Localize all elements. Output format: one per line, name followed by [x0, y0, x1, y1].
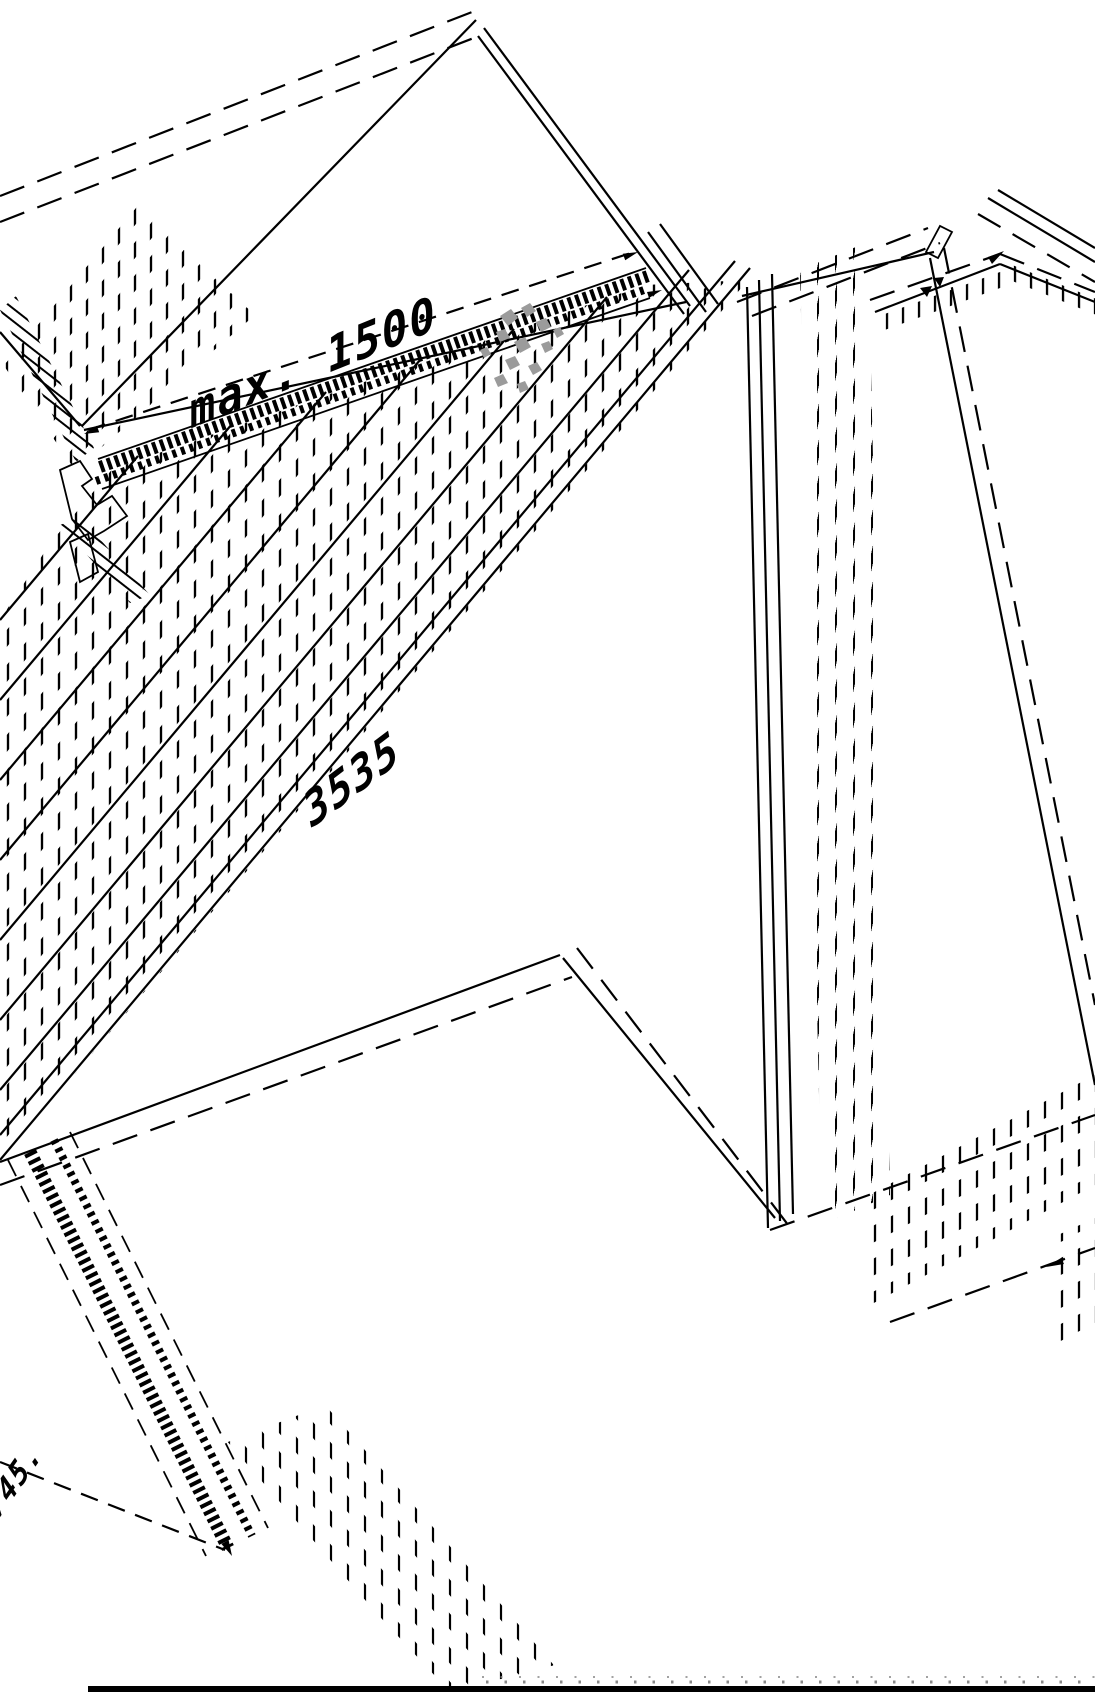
technical-drawing-canvas: 3535 max. 1500: [0, 0, 1095, 1692]
right-beam-right-edge: [930, 258, 1095, 1085]
dimension-arrow-right: [623, 252, 638, 260]
bottom-left-rod: 745.: [0, 1132, 268, 1556]
peak-comb-right: [1000, 258, 1095, 326]
right-beam-top-cap: [926, 226, 952, 258]
right-beam-left-edge: [747, 287, 768, 1228]
slab-end-edge: [563, 958, 775, 1218]
panel-dashed-border-inner: [0, 34, 484, 222]
right-beam-comb-texture: [800, 242, 890, 1225]
footer: [88, 1677, 1095, 1692]
panel-right-edge: [484, 28, 690, 306]
dimension-text-745: 745.: [0, 1435, 50, 1526]
isometric-diagram: 3535 max. 1500: [0, 0, 1095, 1692]
bottom-right-assembly: [870, 1060, 1095, 1352]
right-beam: [737, 190, 1095, 1230]
bottom-center-comb-texture: [220, 1405, 555, 1692]
panel-dashed-border-outer: [0, 12, 472, 196]
right-beam-left-edge-3: [772, 274, 793, 1214]
right-beam-right-edge-dashed: [944, 248, 1095, 1005]
right-beam-left-edge-2: [759, 280, 780, 1221]
slab-end-edge-dashed: [577, 948, 792, 1230]
panel-right-edge-2: [478, 36, 684, 314]
footer-rule: [88, 1686, 1095, 1692]
bottom-right-edge-comb: [1058, 1218, 1095, 1352]
